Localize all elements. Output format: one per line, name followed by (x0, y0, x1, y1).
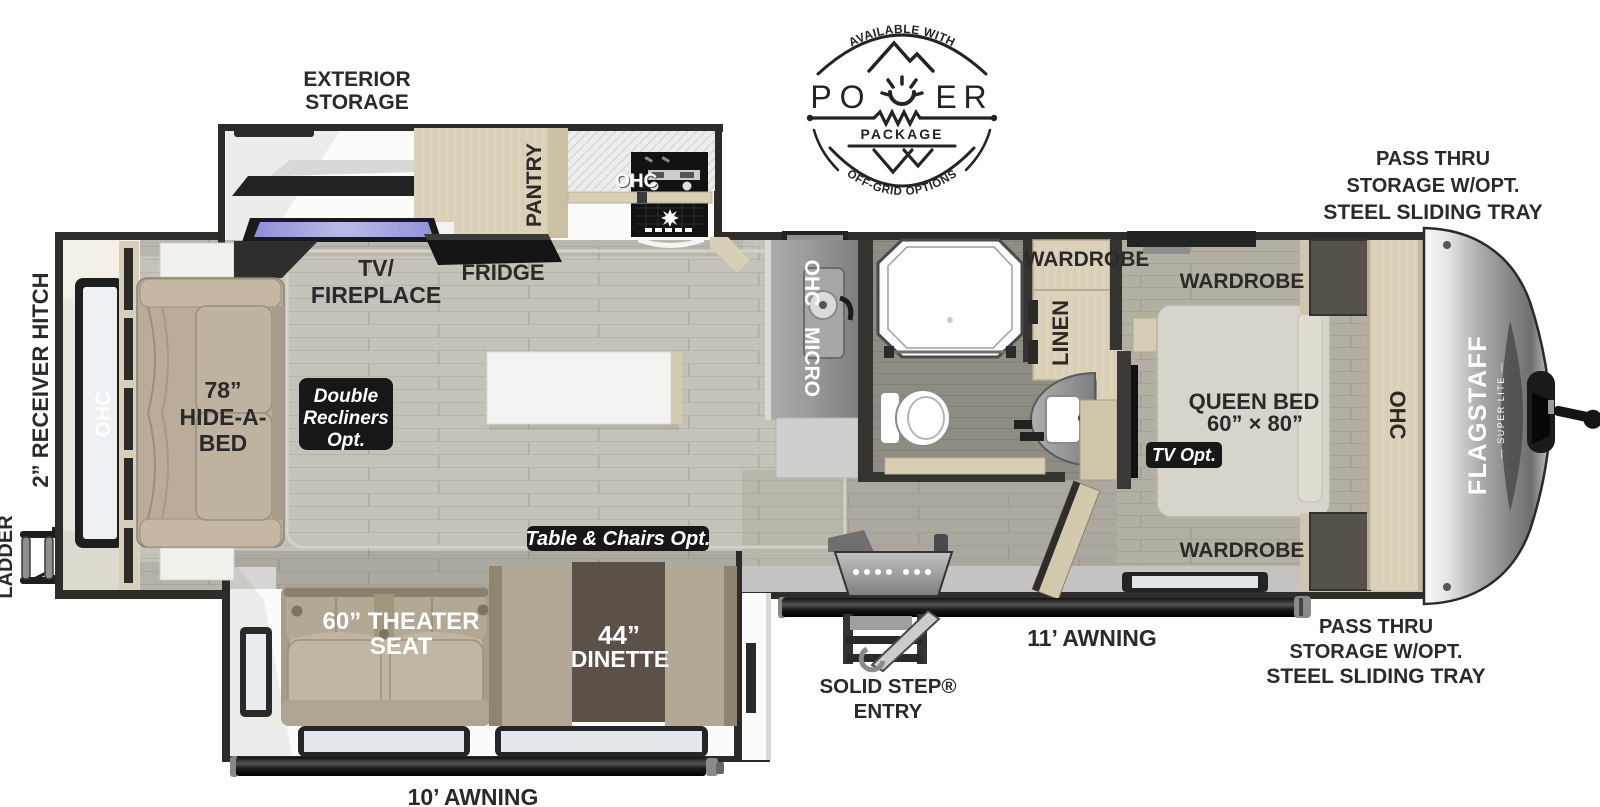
svg-text:78”: 78” (204, 377, 241, 403)
svg-text:2” RECEIVER HITCH: 2” RECEIVER HITCH (28, 272, 53, 487)
svg-text:STORAGE: STORAGE (305, 91, 408, 114)
svg-text:10’ AWNING: 10’ AWNING (408, 784, 539, 807)
svg-text:60” × 80”: 60” × 80” (1207, 411, 1303, 436)
svg-text:11’ AWNING: 11’ AWNING (1027, 625, 1157, 651)
svg-text:PASS THRU: PASS THRU (1376, 148, 1490, 170)
svg-text:TV/: TV/ (358, 255, 394, 281)
svg-text:P: P (810, 79, 831, 115)
svg-text:ENTRY: ENTRY (854, 700, 923, 723)
svg-text:STEEL SLIDING TRAY: STEEL SLIDING TRAY (1323, 201, 1542, 224)
svg-text:Opt.: Opt. (327, 430, 365, 451)
svg-text:PASS THRU: PASS THRU (1319, 616, 1433, 638)
svg-text:LINEN: LINEN (1048, 300, 1073, 366)
svg-text:FIREPLACE: FIREPLACE (311, 282, 441, 308)
svg-text:OHC: OHC (615, 171, 658, 192)
svg-text:OHC: OHC (800, 260, 823, 307)
svg-text:STORAGE W/OPT.: STORAGE W/OPT. (1347, 175, 1520, 197)
svg-text:SOLID STEP®: SOLID STEP® (820, 675, 957, 698)
svg-text:R: R (963, 79, 986, 115)
svg-text:E: E (935, 79, 956, 115)
svg-text:60” THEATER: 60” THEATER (323, 608, 480, 635)
svg-text:DINETTE: DINETTE (571, 646, 669, 672)
svg-text:OHC: OHC (1385, 391, 1410, 440)
svg-text:WARDROBE: WARDROBE (1180, 539, 1305, 562)
svg-text:FLAGSTAFF: FLAGSTAFF (1464, 335, 1492, 495)
svg-text:SEAT: SEAT (370, 633, 433, 660)
svg-text:— SUPER LITE —: — SUPER LITE — (1496, 362, 1506, 459)
svg-text:BED: BED (199, 430, 248, 456)
svg-text:Table & Chairs Opt.: Table & Chairs Opt. (526, 528, 711, 550)
svg-text:Double: Double (314, 386, 379, 407)
svg-text:PACKAGE: PACKAGE (861, 126, 944, 142)
svg-text:MICRO: MICRO (800, 327, 823, 397)
svg-text:WARDROBE: WARDROBE (1180, 270, 1305, 293)
svg-text:HIDE-A-: HIDE-A- (180, 404, 267, 430)
svg-text:STEEL SLIDING TRAY: STEEL SLIDING TRAY (1266, 665, 1485, 688)
svg-text:OHC: OHC (92, 391, 115, 438)
svg-text:PANTRY: PANTRY (523, 143, 546, 227)
svg-text:Recliners: Recliners (303, 408, 389, 429)
svg-text:WARDROBE: WARDROBE (1025, 248, 1150, 271)
svg-text:FRIDGE: FRIDGE (461, 260, 544, 285)
svg-text:O: O (840, 79, 865, 115)
svg-text:STORAGE W/OPT.: STORAGE W/OPT. (1290, 641, 1463, 663)
svg-text:EXTERIOR: EXTERIOR (303, 68, 410, 91)
svg-text:LADDER: LADDER (0, 515, 17, 599)
svg-text:TV Opt.: TV Opt. (1152, 445, 1216, 465)
